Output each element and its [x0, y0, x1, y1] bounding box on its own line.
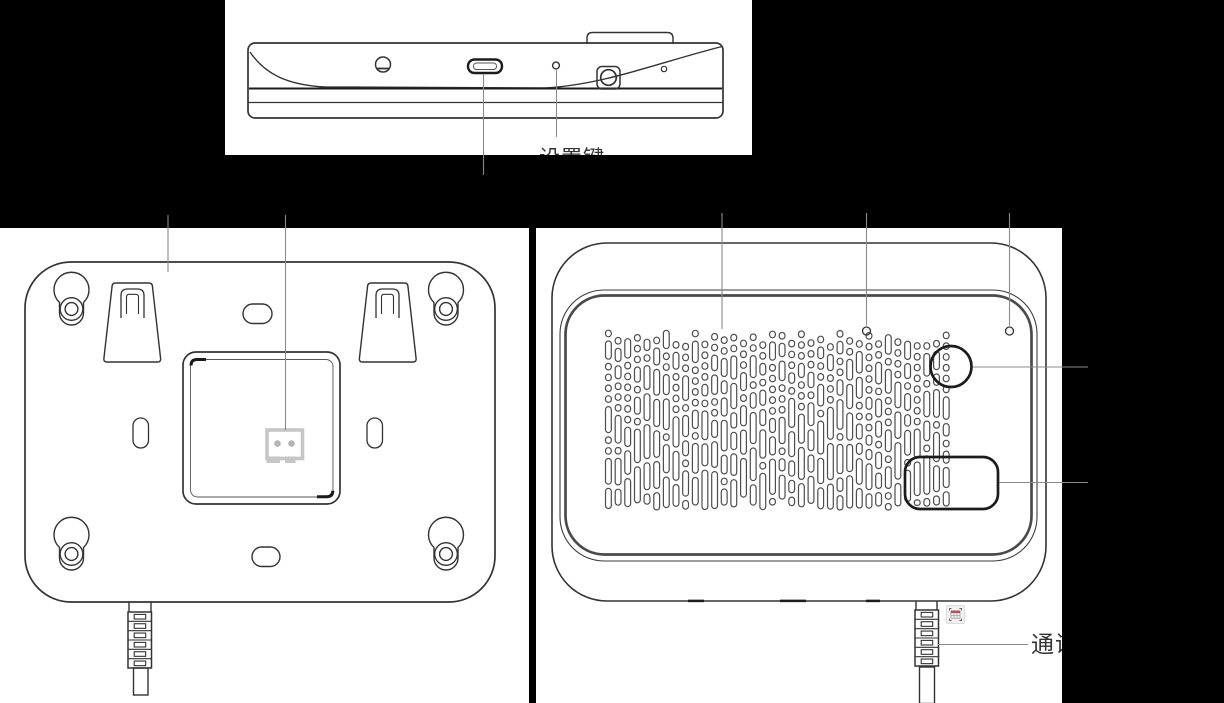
keyhole-mount-tl	[54, 272, 89, 325]
cable-front	[915, 601, 939, 703]
keyhole-mount-tr	[429, 272, 464, 325]
panel-back-view	[0, 228, 529, 703]
device-body-top	[248, 43, 723, 118]
screw-hole	[376, 57, 391, 72]
mounting-hook-right	[359, 283, 416, 362]
side-slot-left	[133, 418, 149, 448]
panel-top-view: 设置键	[225, 0, 752, 155]
setting-key-pinhole	[553, 62, 560, 69]
keyhole-mount-br	[429, 517, 464, 570]
top-view-drawing	[225, 0, 752, 155]
comm-cable-callout-label: 通讯	[1031, 632, 1062, 658]
side-slot-right	[367, 418, 383, 448]
back-view-drawing	[0, 228, 529, 703]
back-body	[25, 262, 495, 602]
bottom-slot	[252, 547, 280, 567]
front-view-drawing	[536, 228, 1062, 703]
cable-back	[128, 602, 152, 695]
two-pin-connector	[267, 430, 303, 463]
panel-front-view: 通讯	[536, 228, 1062, 703]
keyhole-mounts	[54, 272, 464, 570]
usb-c-port	[468, 60, 502, 74]
setting-key-callout-label: 设置键	[539, 146, 605, 155]
technical-drawing-page: { "canvas": {"width": 1224, "height": 70…	[0, 0, 1224, 703]
keyhole-mount-bl	[54, 517, 89, 570]
wall-plate-recess	[183, 352, 340, 504]
top-slot	[243, 304, 272, 324]
speaker-grille	[606, 330, 950, 510]
scan-grid-icon	[946, 605, 965, 624]
pinhole	[661, 66, 666, 71]
pinhole-right	[1006, 327, 1014, 335]
mounting-hook-left	[104, 283, 161, 362]
